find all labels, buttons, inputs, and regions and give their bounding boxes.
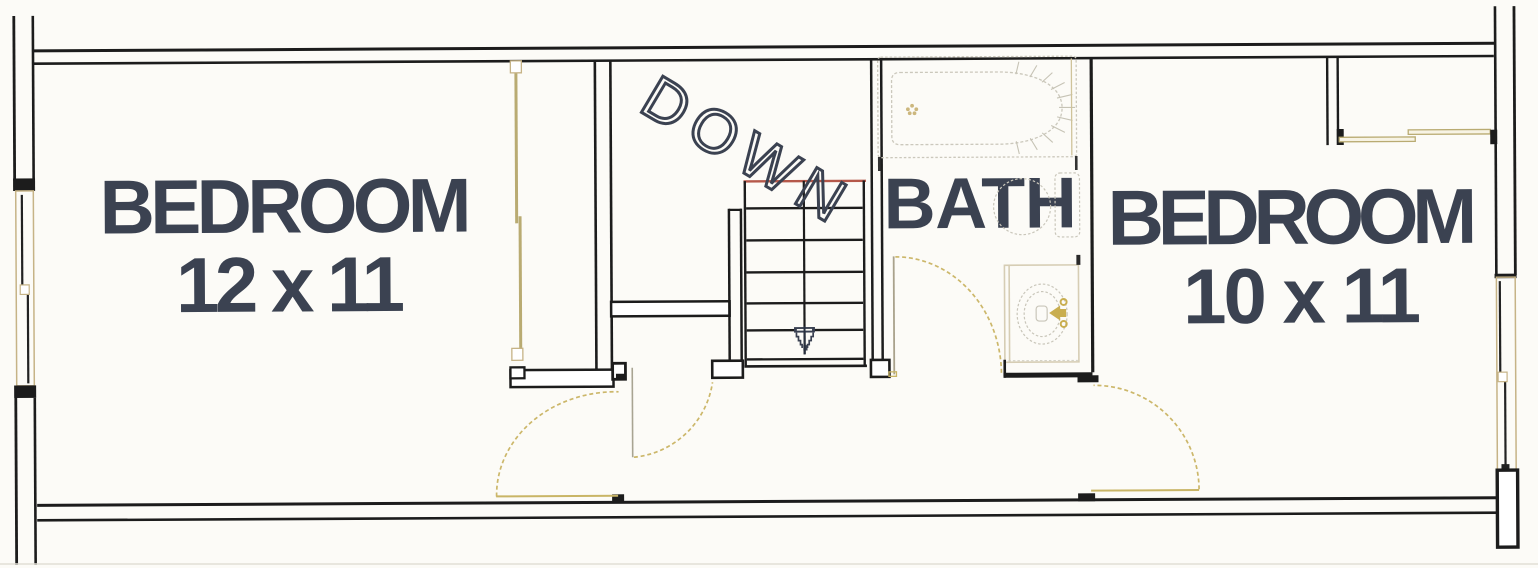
svg-text:BATH: BATH bbox=[883, 163, 1076, 244]
svg-text:BEDROOM: BEDROOM bbox=[1107, 172, 1472, 262]
svg-text:12 x 11: 12 x 11 bbox=[176, 240, 404, 329]
svg-text:10 x 11: 10 x 11 bbox=[1183, 251, 1420, 340]
svg-text:BEDROOM: BEDROOM bbox=[99, 164, 467, 251]
